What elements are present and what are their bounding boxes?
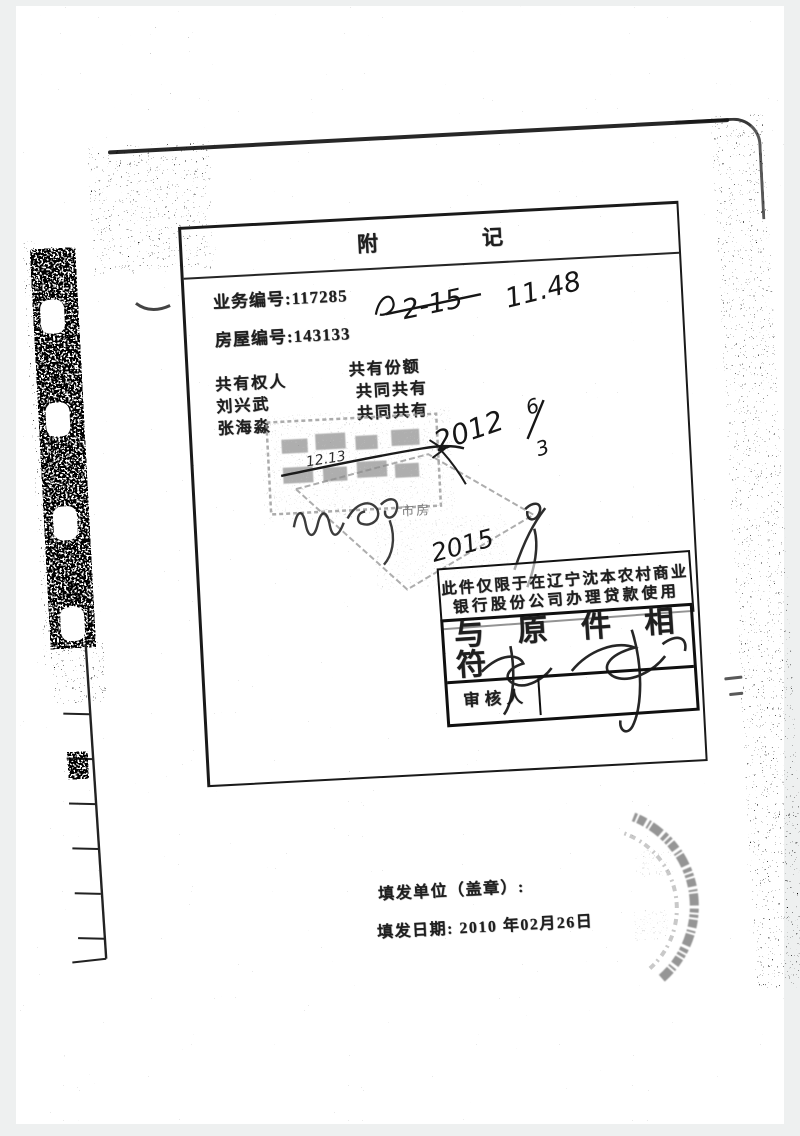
stray-arc-mark xyxy=(129,283,177,315)
punch-hole xyxy=(60,606,86,641)
punch-hole xyxy=(52,506,78,541)
scan-canvas: 附 记 业务编号:117285 房屋编号:143133 共有权人 共有份额 刘兴… xyxy=(0,0,800,1136)
circular-seal-partial xyxy=(482,777,724,1031)
house-no-value: 143133 xyxy=(293,324,351,346)
business-no-value: 117285 xyxy=(291,286,348,308)
business-no-row: 业务编号:117285 xyxy=(213,287,348,311)
page-right-edge-noise xyxy=(711,114,800,990)
ink-blob xyxy=(67,751,88,779)
reviewer-signature xyxy=(466,620,707,760)
handwriting-frac-den: 3 xyxy=(533,435,552,462)
owners-col1-header: 共有权人 xyxy=(215,374,288,394)
house-no-label: 房屋编号: xyxy=(215,327,295,350)
handwriting-2015-text: 2015 xyxy=(428,523,497,567)
house-no-row: 房屋编号:143133 xyxy=(215,325,351,349)
handwriting-top-notes: 2-15 11.48 xyxy=(360,259,594,351)
business-no-label: 业务编号: xyxy=(213,289,293,312)
handwriting-year: 2012 xyxy=(430,404,508,458)
noise-bottom-left xyxy=(129,933,273,1020)
punch-hole xyxy=(40,299,66,334)
issue-date-label: 填发日期: xyxy=(377,920,455,941)
handwriting-2012: 2012 6 3 xyxy=(429,391,573,480)
handwriting-1213: 12.13 xyxy=(305,448,347,470)
handwriting-1148: 11.48 xyxy=(502,266,585,315)
owners-col2-header: 共有份额 xyxy=(348,359,421,379)
noise-top-left-outside xyxy=(106,26,224,154)
title-char-right: 记 xyxy=(481,226,503,248)
handwriting-frac-num: 6 xyxy=(523,393,542,420)
scribble-under-stamp xyxy=(283,474,438,574)
page-rotated-frame: 附 记 业务编号:117285 房屋编号:143133 共有权人 共有份额 刘兴… xyxy=(118,119,795,1019)
punch-hole xyxy=(45,402,71,437)
title-char-left: 附 xyxy=(357,233,379,255)
